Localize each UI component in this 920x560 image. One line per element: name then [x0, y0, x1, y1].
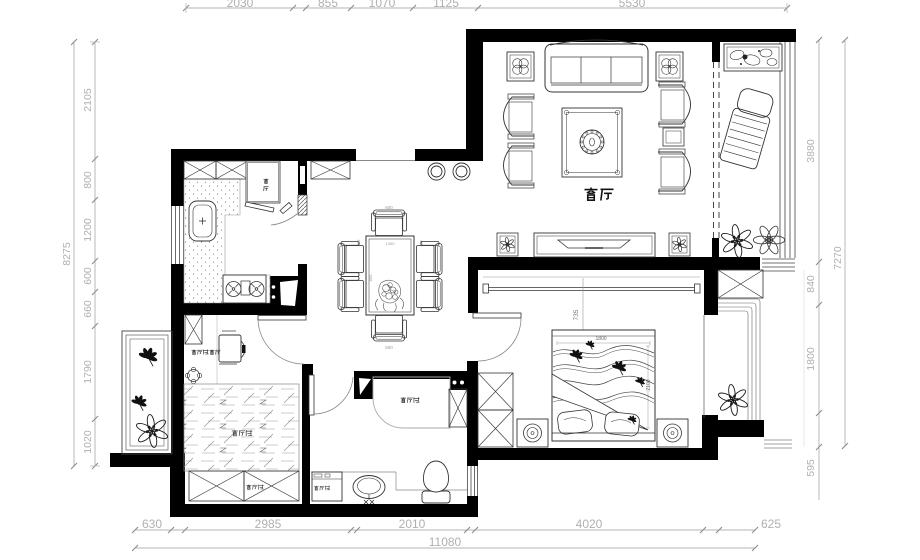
svg-text:1125: 1125 [433, 0, 459, 10]
svg-text:8275: 8275 [61, 242, 73, 266]
svg-text:11080: 11080 [429, 535, 462, 549]
svg-text:5530: 5530 [619, 0, 646, 10]
svg-text:1070: 1070 [369, 0, 396, 10]
svg-text:2030: 2030 [227, 0, 254, 10]
svg-text:600: 600 [385, 205, 393, 210]
svg-text:4020: 4020 [576, 517, 603, 531]
svg-text:600: 600 [82, 267, 94, 285]
svg-text:7270: 7270 [832, 246, 844, 270]
svg-text:840: 840 [805, 275, 817, 293]
svg-text:2985: 2985 [255, 517, 282, 531]
svg-text:855: 855 [318, 0, 338, 10]
svg-text:1400: 1400 [386, 241, 396, 246]
svg-text:1020: 1020 [82, 430, 94, 454]
svg-text:450: 450 [419, 240, 424, 247]
svg-text:2010: 2010 [399, 517, 426, 531]
svg-text:595: 595 [805, 459, 817, 477]
svg-text:625: 625 [761, 517, 781, 531]
svg-text:1200: 1200 [82, 218, 94, 242]
svg-text:1800: 1800 [595, 336, 606, 342]
svg-text:1800: 1800 [805, 347, 817, 371]
svg-text:800: 800 [368, 274, 373, 281]
svg-text:3880: 3880 [805, 139, 817, 163]
svg-text:660: 660 [82, 300, 94, 318]
svg-text:630: 630 [142, 517, 162, 531]
svg-text:600: 600 [385, 345, 393, 350]
svg-text:800: 800 [82, 171, 94, 189]
svg-text:2105: 2105 [82, 88, 94, 112]
svg-text:1790: 1790 [82, 360, 94, 384]
svg-text:735: 735 [573, 309, 580, 320]
